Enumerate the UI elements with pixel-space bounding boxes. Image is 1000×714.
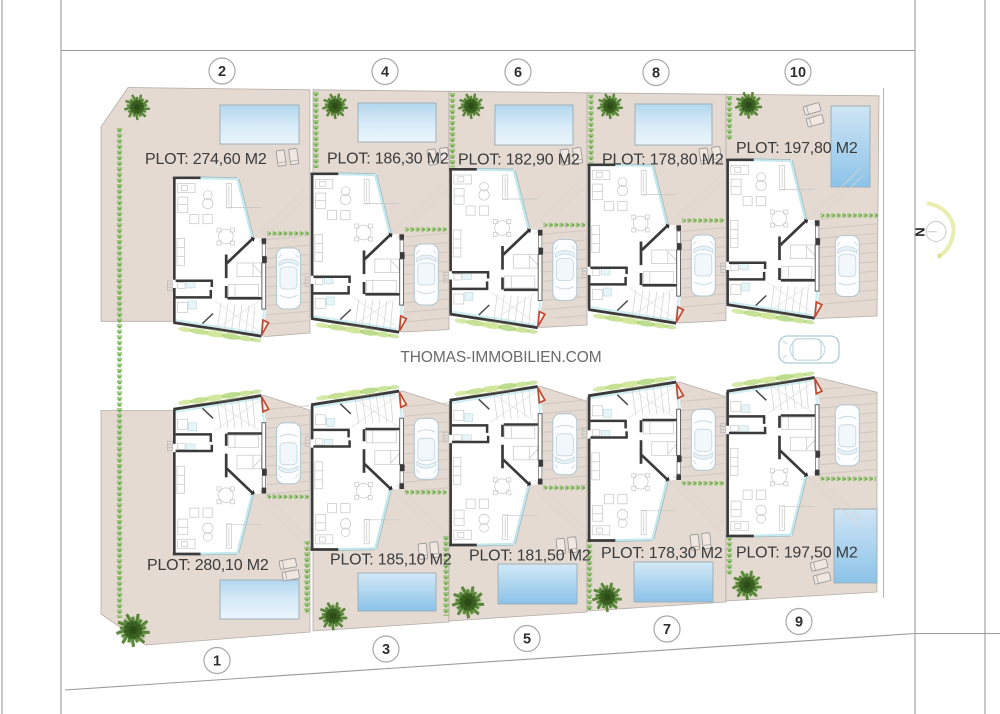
svg-text:PLOT: 178,80 M2: PLOT: 178,80 M2 (602, 152, 724, 169)
svg-text:PLOT: 185,10 M2: PLOT: 185,10 M2 (330, 552, 452, 569)
svg-text:9: 9 (795, 615, 803, 631)
svg-text:PLOT: 186,30 M2: PLOT: 186,30 M2 (327, 151, 449, 168)
svg-text:PLOT: 280,10 M2: PLOT: 280,10 M2 (147, 557, 269, 574)
svg-text:1: 1 (213, 654, 221, 670)
svg-text:N: N (912, 227, 927, 236)
svg-text:5: 5 (523, 632, 531, 648)
svg-text:6: 6 (514, 65, 522, 81)
svg-text:10: 10 (790, 65, 806, 81)
svg-text:4: 4 (381, 65, 389, 81)
svg-text:PLOT: 197,50 M2: PLOT: 197,50 M2 (736, 545, 858, 562)
svg-text:THOMAS-IMMOBILIEN.COM: THOMAS-IMMOBILIEN.COM (400, 349, 601, 366)
svg-text:PLOT: 197,80 M2: PLOT: 197,80 M2 (736, 140, 858, 157)
svg-text:PLOT: 274,60 M2: PLOT: 274,60 M2 (145, 151, 267, 168)
svg-text:7: 7 (663, 622, 671, 638)
svg-text:2: 2 (218, 64, 226, 80)
svg-text:8: 8 (652, 66, 660, 82)
svg-text:PLOT: 182,90 M2: PLOT: 182,90 M2 (458, 152, 580, 169)
svg-text:PLOT: 181,50 M2: PLOT: 181,50 M2 (469, 548, 591, 565)
svg-text:3: 3 (382, 642, 390, 658)
svg-text:PLOT: 178,30 M2: PLOT: 178,30 M2 (601, 545, 723, 562)
